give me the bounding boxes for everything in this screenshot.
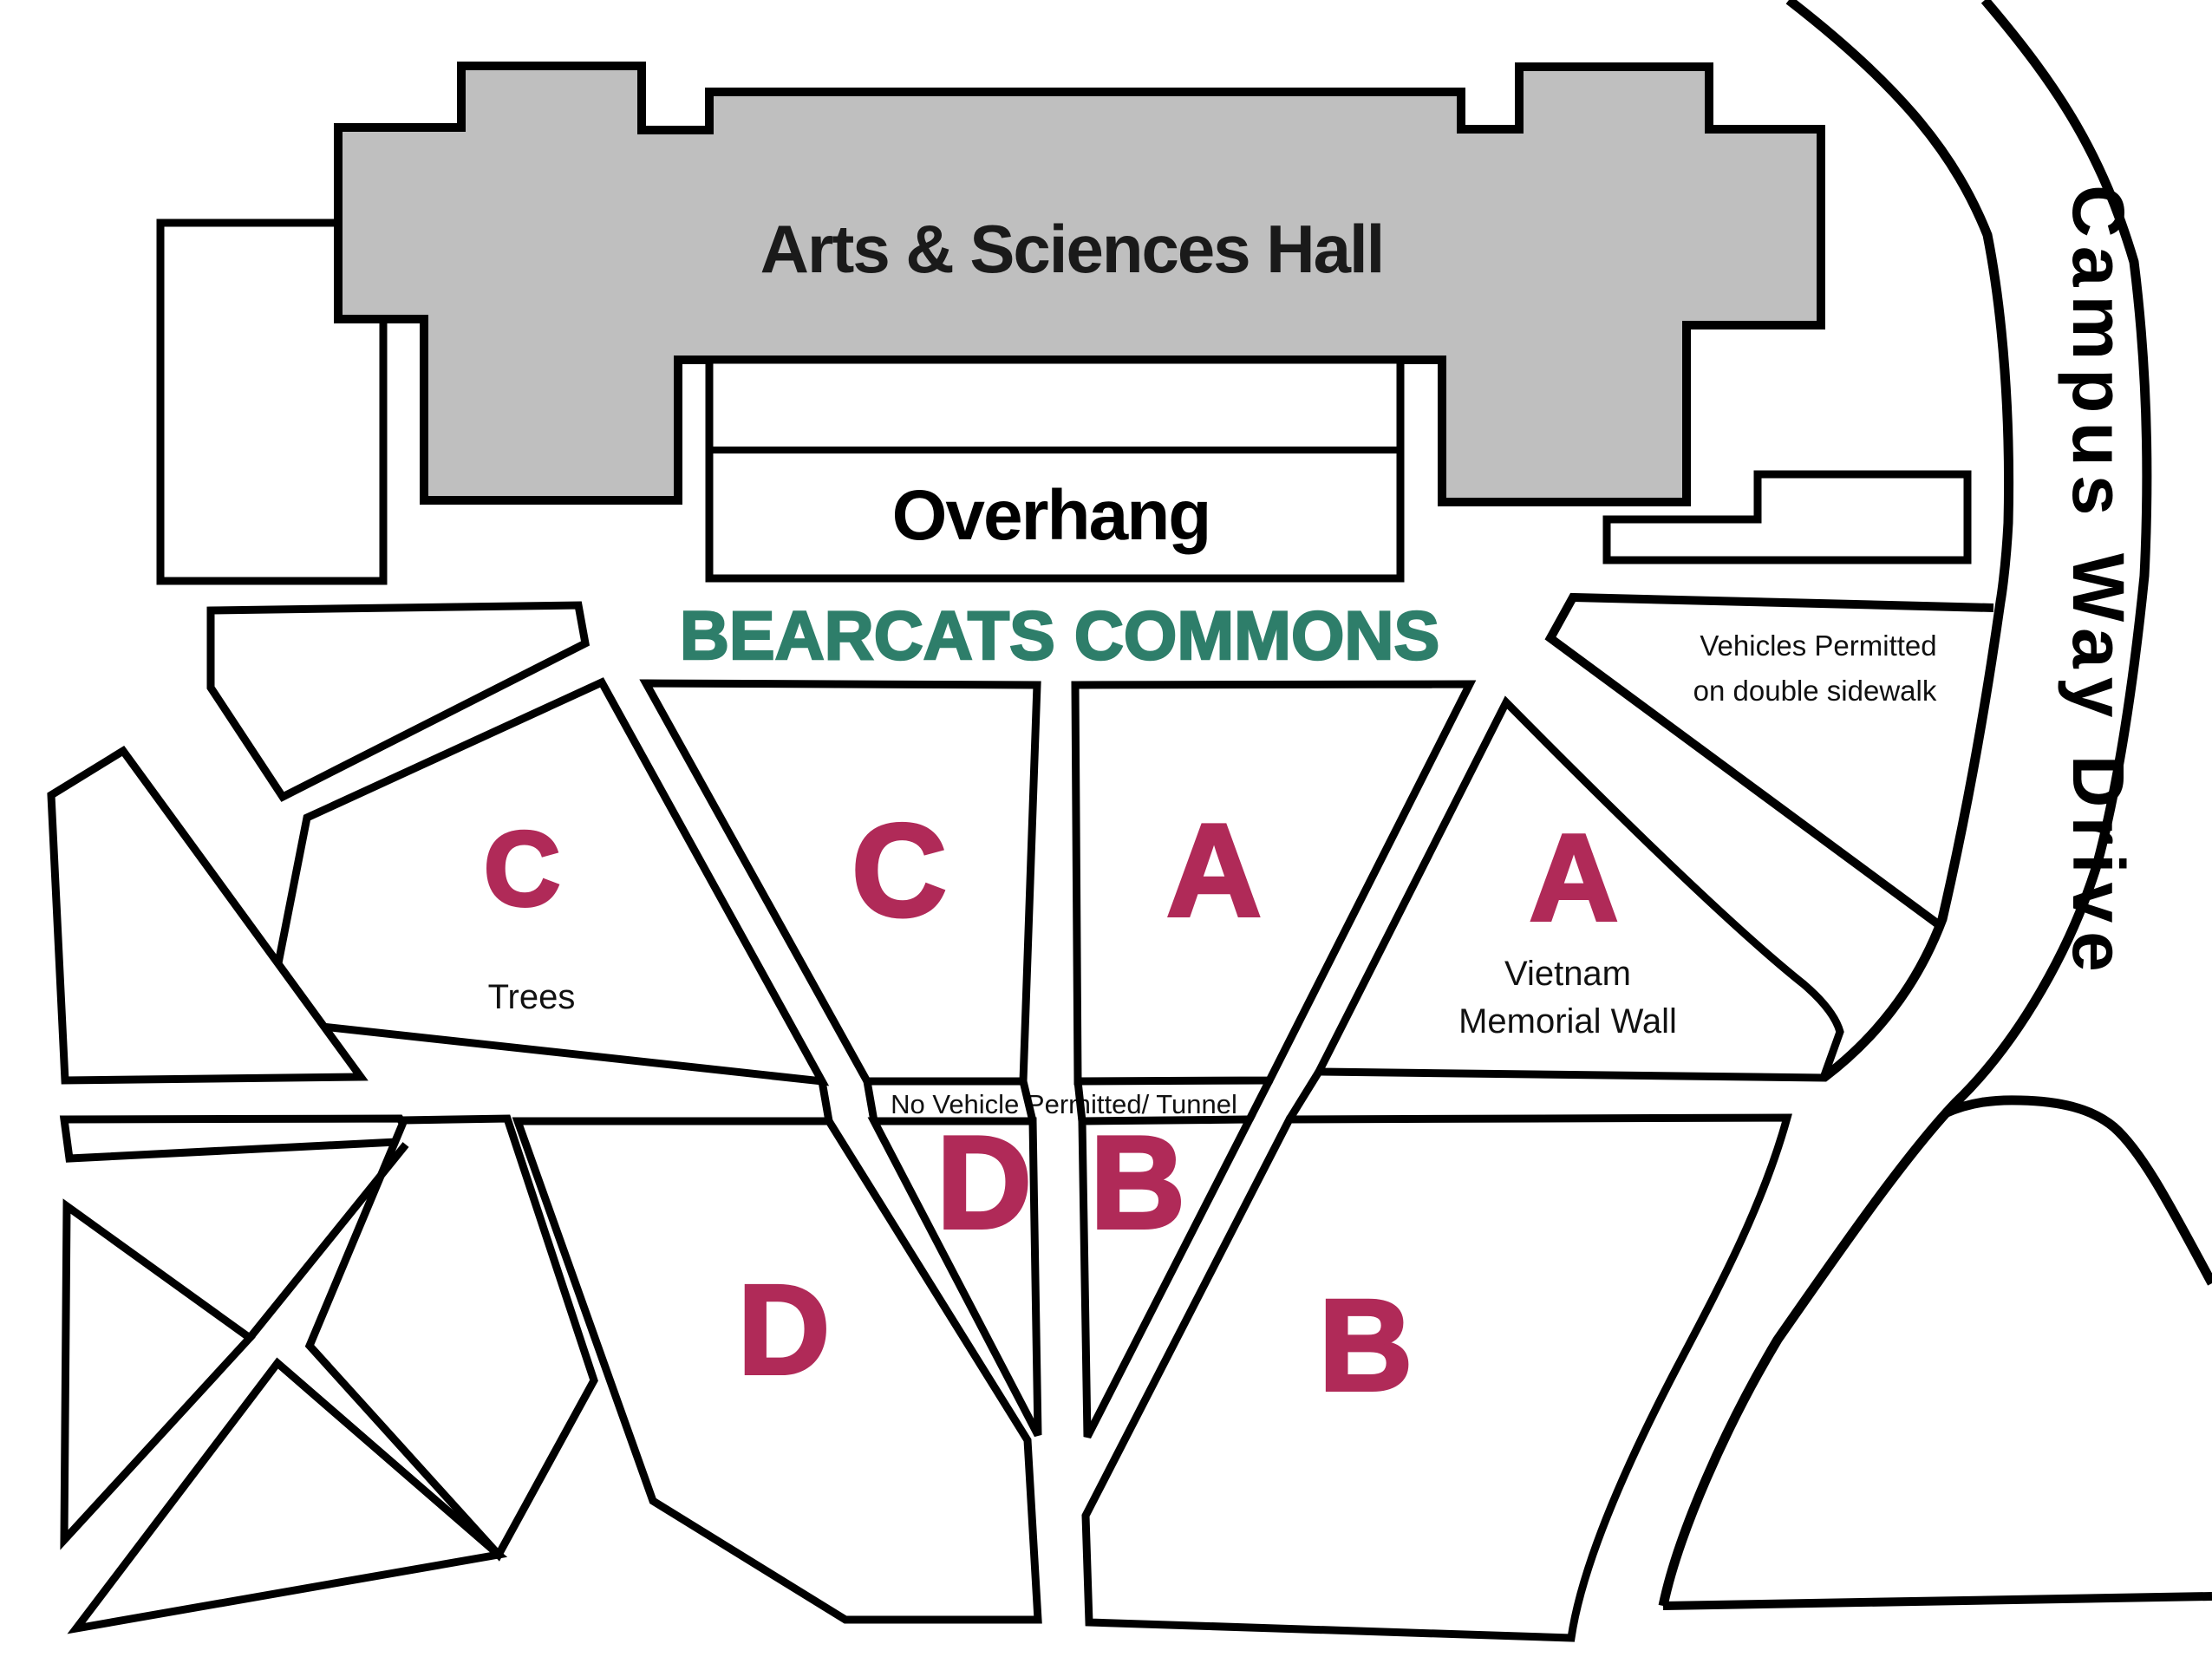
svg-text:B: B — [1090, 1109, 1185, 1256]
svg-text:Vietnam: Vietnam — [1504, 955, 1631, 993]
svg-text:Vehicles Permitted: Vehicles Permitted — [1700, 630, 1936, 662]
svg-text:Memorial Wall: Memorial Wall — [1458, 1002, 1677, 1041]
svg-text:C: C — [852, 797, 947, 944]
svg-text:A: A — [1166, 797, 1262, 944]
svg-text:Overhang: Overhang — [892, 476, 1210, 555]
svg-text:Campus Way Drive: Campus Way Drive — [2058, 185, 2139, 981]
svg-text:Trees: Trees — [488, 978, 576, 1016]
svg-text:on double sidewalk: on double sidewalk — [1693, 675, 1937, 707]
svg-text:C: C — [484, 810, 560, 928]
svg-text:B: B — [1319, 1272, 1413, 1418]
svg-text:D: D — [738, 1259, 830, 1401]
svg-text:BEARCATS COMMONS: BEARCATS COMMONS — [680, 597, 1439, 674]
svg-text:D: D — [936, 1109, 1032, 1256]
svg-text:Arts & Sciences Hall: Arts & Sciences Hall — [760, 211, 1384, 287]
svg-text:A: A — [1530, 809, 1619, 947]
